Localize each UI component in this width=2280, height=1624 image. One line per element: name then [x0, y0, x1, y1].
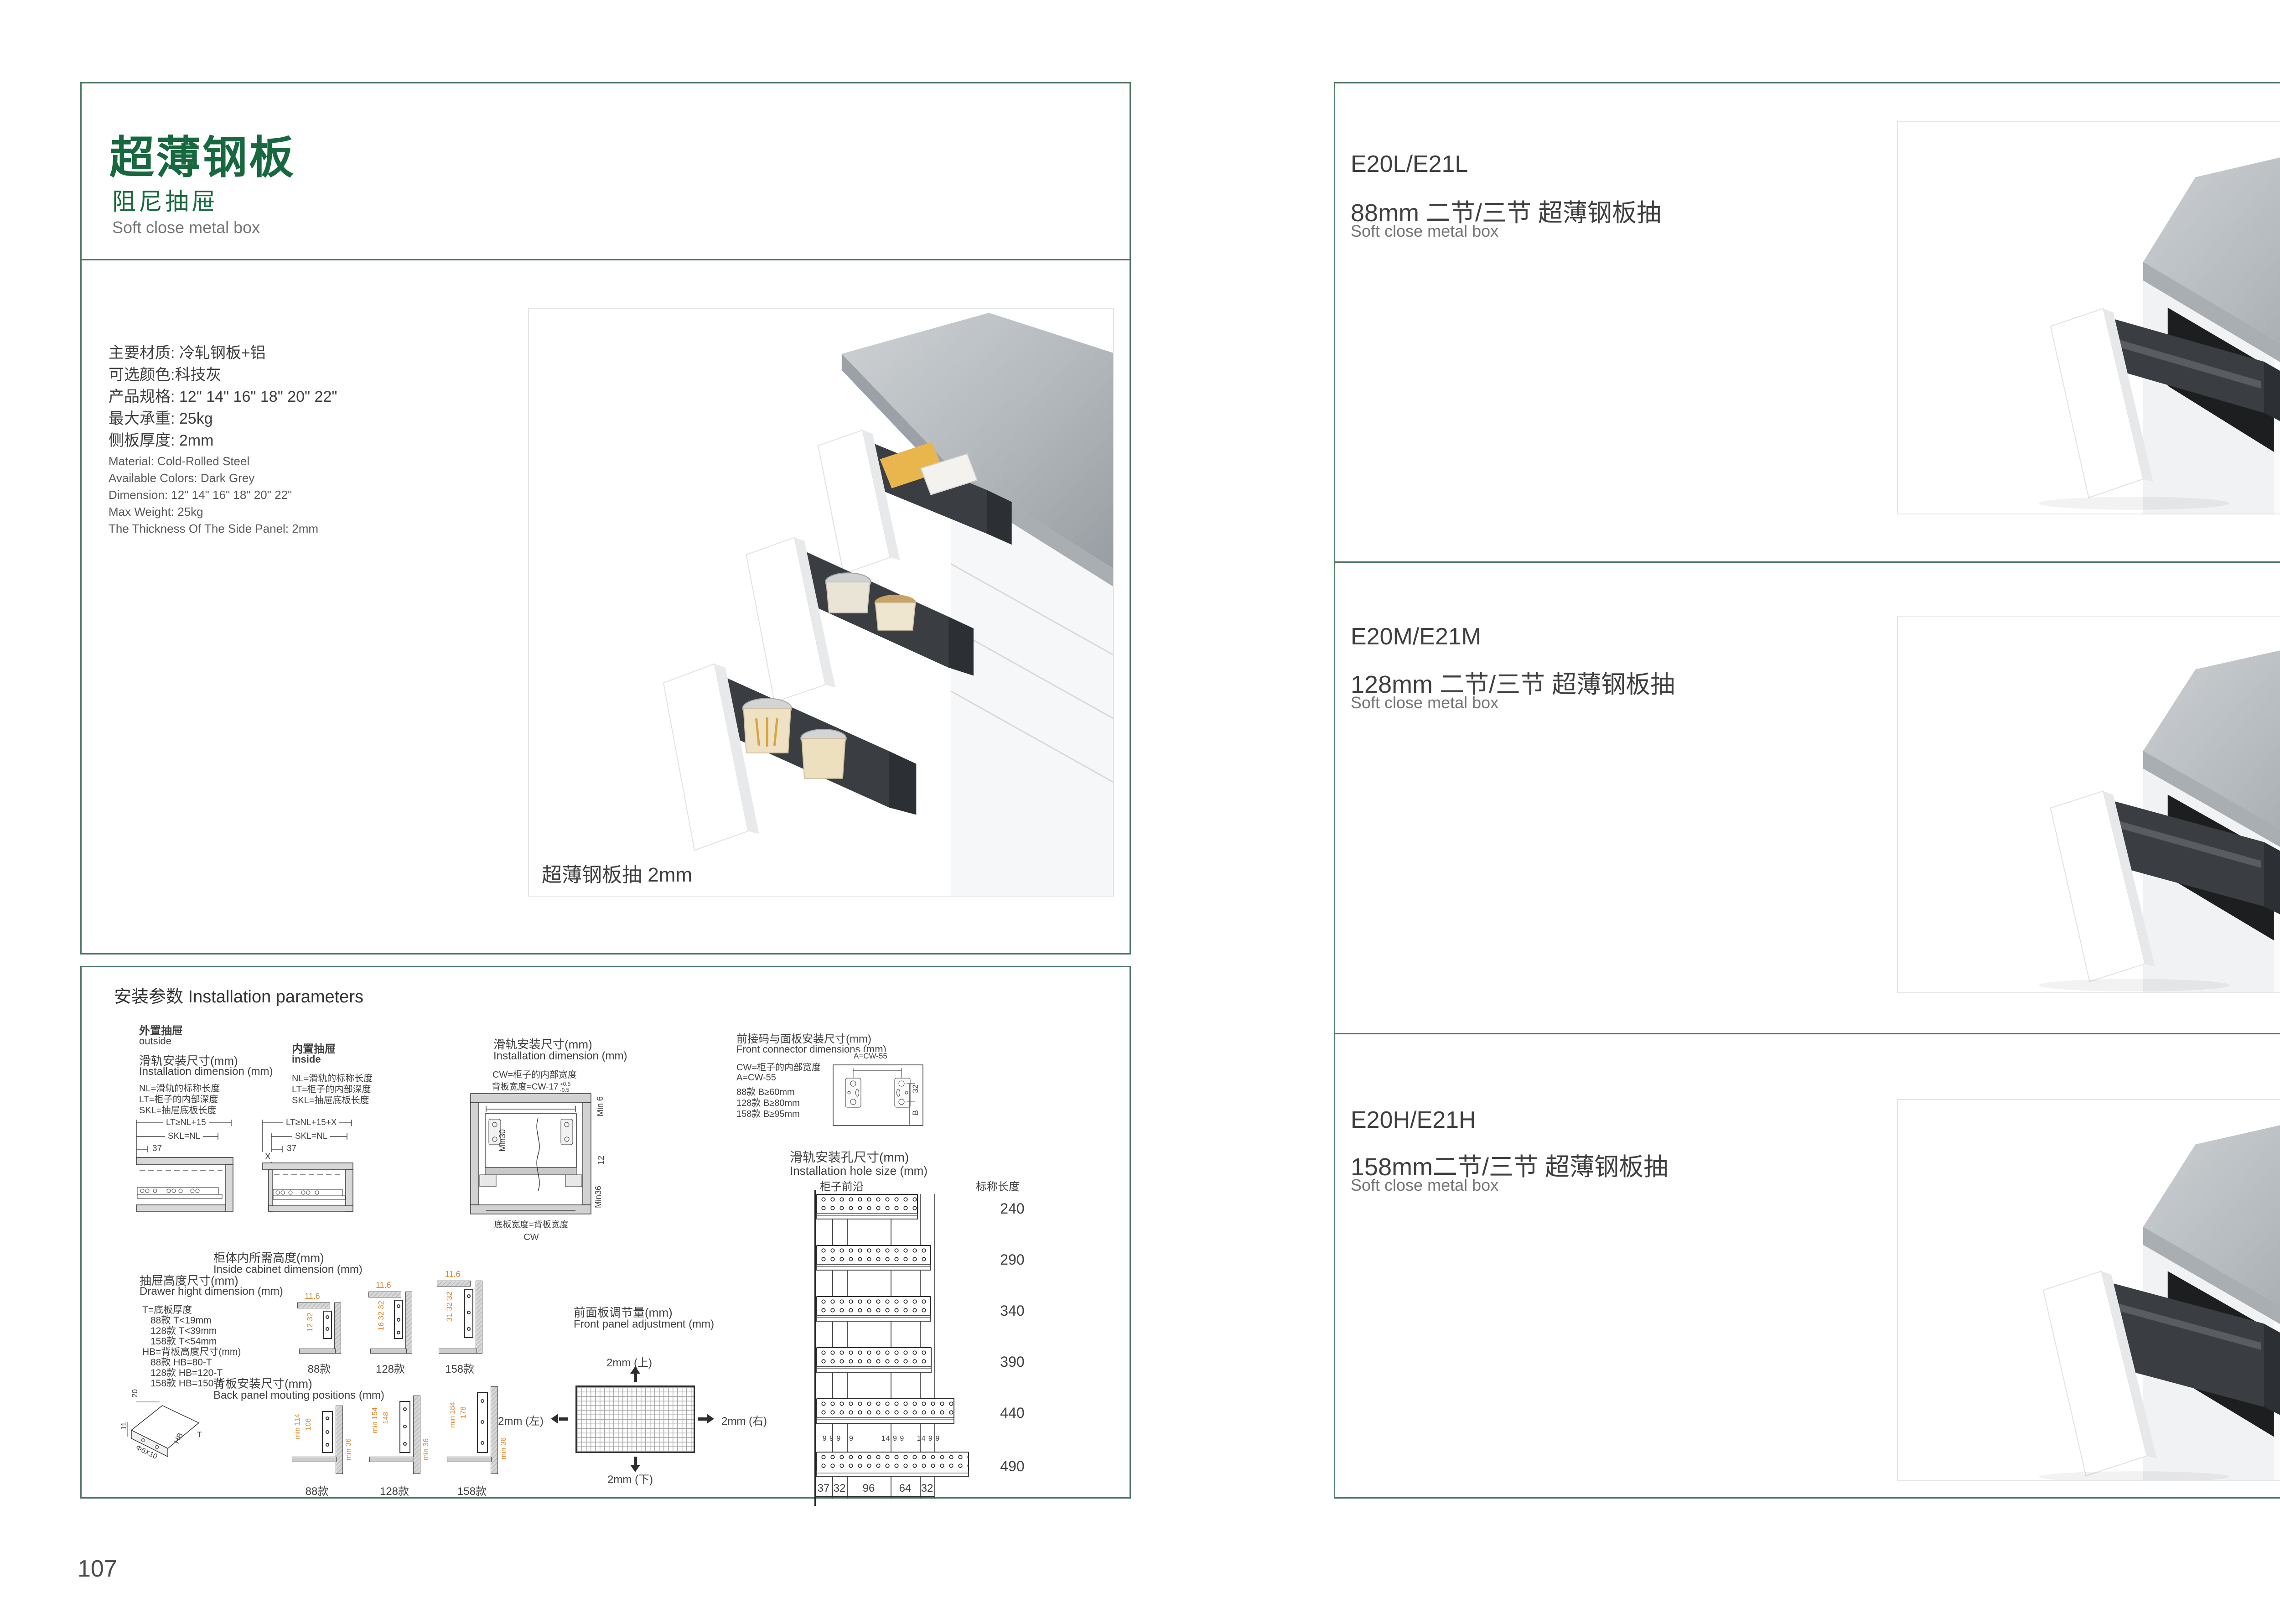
section-code: E20M/E21M — [1351, 623, 1481, 650]
width-diagram-title-en: Installation dimension (mm) — [493, 1050, 627, 1063]
section-photo-158 — [1897, 1099, 2280, 1481]
backpanel-158-label: 158款 — [442, 1482, 502, 1498]
drawer-side — [394, 1300, 403, 1339]
drawer-88-illustration — [1898, 122, 2280, 514]
rail-length: 390 — [980, 1354, 1044, 1370]
page-number-left: 107 — [78, 1555, 117, 1582]
left-frame-divider — [80, 259, 1131, 260]
connector-legend-cw: CW=柜子的内部宽度 — [736, 1060, 821, 1073]
page-subtitle: 阻尼抽屉 — [112, 182, 218, 217]
cabinet-top-panel — [437, 1281, 471, 1287]
rail-440 — [816, 1398, 954, 1418]
inside-legend: SKL=抽屉底板长度 — [292, 1093, 369, 1106]
rail-bottom-dim: 96 — [855, 1482, 882, 1495]
drawer-side — [323, 1311, 332, 1339]
frontadjust-title-en: Front panel adjustment (mm) — [574, 1318, 714, 1331]
arrow-down-icon — [634, 1457, 637, 1466]
insidecab-158-label: 158款 — [432, 1360, 487, 1376]
arrow-left-icon — [551, 1414, 558, 1424]
drawer-bottom — [370, 1349, 407, 1354]
product-photo: 超薄钢板抽 2mm — [528, 308, 1114, 897]
drawer-bottom — [299, 1349, 336, 1354]
right-divider-2 — [1334, 1033, 2280, 1034]
backpanel-title-en: Back panel mouting positions (mm) — [213, 1389, 384, 1402]
iso-dim-11: 11 — [119, 1422, 129, 1430]
backpanel-128-outer: min 154 — [371, 1407, 379, 1433]
cabinet-side-panel — [491, 1386, 498, 1474]
outside-legend: SKL=抽屉底板长度 — [139, 1103, 216, 1116]
backpanel-158-inner: 178 — [460, 1406, 468, 1419]
frontadjust-up-label: 2mm (上) — [606, 1354, 652, 1370]
holesize-length-header: 标称长度 — [976, 1178, 1020, 1193]
iso-dim-t: T — [197, 1430, 202, 1439]
cabinet-top-panel — [297, 1302, 330, 1308]
rail-length: 440 — [980, 1405, 1044, 1422]
drawerheight-iso: 20 11 Φ6X10 HB T — [122, 1395, 204, 1463]
rail-490 — [816, 1452, 969, 1472]
rail-bottom-dimline — [815, 1496, 934, 1497]
right-divider-1 — [1334, 561, 2280, 563]
install-section-title: 安装参数 Installation parameters — [114, 982, 363, 1007]
section-subtitle: Soft close metal box — [1351, 1176, 1498, 1195]
holesize-front-edge: 柜子前沿 — [820, 1178, 864, 1193]
spec-line-cn: 侧板厚度: 2mm — [109, 428, 213, 450]
front-panel-graphic — [575, 1385, 695, 1453]
rail-length: 340 — [980, 1302, 1044, 1319]
arrow-right-icon — [707, 1414, 714, 1424]
connector-dim-32: 32 — [911, 1084, 920, 1093]
arrow-left-icon — [559, 1417, 568, 1421]
drawer-128-illustration — [1898, 617, 2280, 992]
inside-label-en: inside — [292, 1053, 321, 1065]
backpanel-88-inner: 108 — [305, 1418, 313, 1431]
insidecab-128-label: 128款 — [363, 1360, 418, 1376]
width-12: 12 — [596, 1156, 606, 1165]
width-min6: Min 6 — [596, 1096, 605, 1116]
frontadjust-left-label: 2mm (左) — [498, 1412, 544, 1428]
page-subtitle-en: Soft close metal box — [112, 218, 260, 237]
backpanel-128-label: 128款 — [365, 1482, 424, 1498]
drawer-bottom — [369, 1457, 414, 1462]
connector-dim-a: A=CW-55 — [851, 1052, 890, 1061]
rail-top-dim: 14 9 9 — [874, 1435, 912, 1443]
width-cw: CW — [470, 1232, 593, 1243]
inside-dim-mid: SKL=NL — [292, 1131, 330, 1141]
insidecab-158-top: 11.6 — [445, 1270, 461, 1279]
section-code: E20L/E21L — [1351, 150, 1468, 178]
spec-line-en: Available Colors: Dark Grey — [109, 471, 254, 485]
spec-line-cn: 最大承重: 25kg — [109, 406, 213, 428]
page-title: 超薄钢板 — [109, 121, 295, 186]
arrow-down-icon — [630, 1465, 640, 1472]
rail-bottom-dim: 32 — [826, 1482, 853, 1495]
rail-340 — [816, 1296, 931, 1316]
cabinet-side-panel — [334, 1302, 341, 1354]
insidecab-88: 11.6 12 32 — [297, 1302, 341, 1354]
width-min30: Min30 — [498, 1129, 508, 1152]
outside-dim-mid: SKL=NL — [165, 1131, 203, 1141]
drawerheight-title-en: Drawer hight dimension (mm) — [140, 1285, 283, 1298]
outside-diagram: LT≥NL+15 SKL=NL 37 — [136, 1116, 234, 1218]
drawerheight-line: 158款 HB=150-T — [150, 1376, 223, 1390]
backpanel-88-right: min 36 — [345, 1438, 353, 1460]
section-photo-88 — [1897, 121, 2280, 514]
cabinet-side-panel — [476, 1281, 482, 1354]
iso-dim-20: 20 — [130, 1389, 140, 1398]
cabinet-side-panel — [405, 1292, 412, 1354]
spec-line-en: Dimension: 12" 14" 16" 18" 20" 22" — [109, 488, 292, 502]
rail-top-dim: 14 9 9 — [909, 1435, 948, 1443]
backpanel-158-right: min 36 — [500, 1437, 508, 1459]
spec-line-cn: 主要材质: 冷轧钢板+铝 — [109, 340, 266, 363]
inside-dim-x: X — [262, 1152, 274, 1162]
insidecab-88-side: 12 32 — [306, 1313, 315, 1332]
insidecab-158-side: 31 32 32 — [445, 1292, 454, 1322]
spec-line-en: The Thickness Of The Side Panel: 2mm — [109, 522, 318, 536]
spec-line-cn: 产品规格: 12" 14" 16" 18" 20" 22" — [109, 384, 337, 406]
width-diagram-legend: CW=柜子的内部宽度 — [492, 1067, 577, 1080]
drawer-stack-illustration — [529, 309, 1113, 896]
backpanel-88-outer: min 114 — [294, 1414, 302, 1439]
frontadjust-right-label: 2mm (右) — [721, 1412, 767, 1428]
backpanel-128-right: min 36 — [422, 1438, 430, 1460]
backpanel-128-inner: 148 — [382, 1412, 390, 1424]
backwidth-text: 背板宽度=CW-17 — [492, 1082, 559, 1092]
arrow-up-icon — [630, 1366, 640, 1374]
outside-dim-top: LT≥NL+15 — [163, 1118, 209, 1128]
width-diagram-backwidth: 背板宽度=CW-17+0.5-0.5 — [470, 1080, 593, 1093]
drawer-bottom — [447, 1457, 492, 1462]
frontadjust-down-label: 2mm (下) — [607, 1470, 653, 1486]
back-panel — [322, 1411, 333, 1453]
backpanel-128: min 154 148 min 36 — [368, 1396, 420, 1474]
rail-top-dim: 9 — [844, 1435, 859, 1443]
width-min36: Min36 — [594, 1186, 603, 1208]
back-panel — [399, 1401, 410, 1453]
catalog-spread: 超薄钢板 阻尼抽屉 Soft close metal box 主要材质: 冷轧钢… — [0, 8, 2280, 1624]
backpanel-88: min 114 108 min 36 — [290, 1406, 343, 1474]
section-photo-128 — [1897, 616, 2280, 993]
drawer-side — [464, 1289, 473, 1338]
insidecab-128-side: 16 32 32 — [377, 1301, 386, 1331]
photo-caption: 超薄钢板抽 2mm — [542, 858, 692, 887]
section-subtitle: Soft close metal box — [1351, 693, 1498, 712]
section-code: E20H/E21H — [1351, 1106, 1476, 1134]
connector-diagram: 32 B — [833, 1064, 924, 1126]
insidecab-158: 11.6 31 32 32 — [437, 1281, 482, 1354]
rail-240 — [816, 1194, 918, 1214]
backpanel-158: min 184 178 min 36 — [445, 1386, 498, 1474]
drawer-bottom — [439, 1349, 477, 1354]
inside-dim-top: LT≥NL+15+X — [283, 1118, 339, 1128]
spec-line-cn: 可选颜色:科技灰 — [109, 362, 221, 384]
connector-dim-b: B — [911, 1110, 920, 1115]
drawer-158-illustration — [1898, 1100, 2280, 1480]
section-subtitle: Soft close metal box — [1351, 222, 1498, 241]
cabinet-side-panel — [336, 1406, 343, 1474]
backpanel-158-outer: min 184 — [449, 1402, 457, 1428]
rail-length: 240 — [980, 1200, 1044, 1217]
connector-legend-a: A=CW-55 — [736, 1073, 776, 1083]
backwidth-tol: +0.5-0.5 — [560, 1081, 571, 1093]
spec-line-en: Material: Cold-Rolled Steel — [109, 454, 249, 468]
arrow-right-icon — [698, 1417, 707, 1421]
connector-legend-158: 158款 B≥95mm — [736, 1106, 800, 1120]
insidecab-88-label: 88款 — [292, 1360, 347, 1376]
holesize-title-cn: 滑轨安装孔尺寸(mm) — [790, 1147, 909, 1166]
rail-290 — [816, 1245, 931, 1265]
drawer-bottom — [292, 1457, 337, 1462]
insidecab-128-top: 11.6 — [376, 1281, 391, 1290]
width-bottomwidth: 底板宽度=背板宽度 — [470, 1218, 593, 1230]
outside-dim-front: 37 — [150, 1144, 165, 1154]
rail-length: 490 — [980, 1458, 1044, 1475]
insidecab-title-en: Inside cabinet dimension (mm) — [213, 1263, 363, 1276]
width-diagram: Min30 — [470, 1093, 593, 1215]
inside-dim-front: 37 — [284, 1144, 299, 1154]
cabinet-side-panel — [413, 1396, 420, 1474]
rail-bottom-dim: 32 — [913, 1482, 941, 1495]
inside-diagram: LT≥NL+15+X SKL=NL 37 X — [262, 1116, 353, 1218]
spec-line-en: Max Weight: 25kg — [109, 505, 203, 519]
cabinet-top-panel — [368, 1292, 401, 1297]
holesize-title-en: Installation hole size (mm) — [790, 1164, 928, 1178]
arrow-up-icon — [634, 1373, 637, 1382]
rail-390 — [816, 1347, 932, 1367]
rail-length: 290 — [980, 1251, 1044, 1268]
insidecab-128: 11.6 16 32 32 — [368, 1292, 412, 1354]
back-panel — [477, 1392, 488, 1453]
outside-label-en: outside — [139, 1035, 171, 1047]
outside-dim-title-en: Installation dimension (mm) — [139, 1065, 273, 1078]
backpanel-88-label: 88款 — [287, 1482, 347, 1498]
insidecab-88-top: 11.6 — [305, 1292, 320, 1301]
